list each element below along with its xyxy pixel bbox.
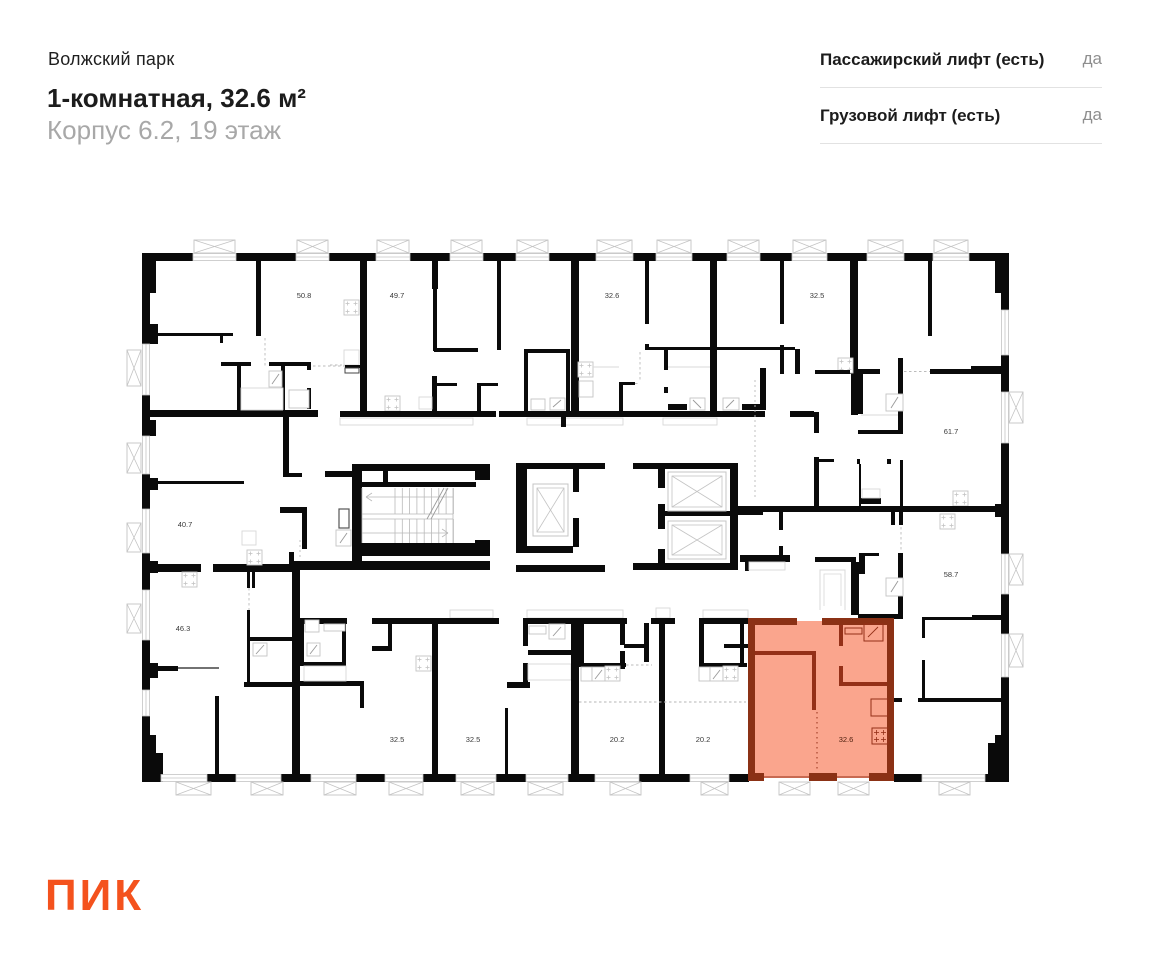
svg-text:50.8: 50.8 [297,291,312,300]
svg-text:20.2: 20.2 [696,735,711,744]
svg-text:46.3: 46.3 [176,624,191,633]
svg-text:49.7: 49.7 [390,291,405,300]
svg-text:32.6: 32.6 [605,291,620,300]
svg-text:32.5: 32.5 [390,735,405,744]
svg-text:58.7: 58.7 [944,570,959,579]
svg-text:32.5: 32.5 [810,291,825,300]
svg-text:32.6: 32.6 [839,735,854,744]
svg-text:32.5: 32.5 [466,735,481,744]
svg-text:20.2: 20.2 [610,735,625,744]
svg-text:40.7: 40.7 [178,520,193,529]
svg-text:61.7: 61.7 [944,427,959,436]
